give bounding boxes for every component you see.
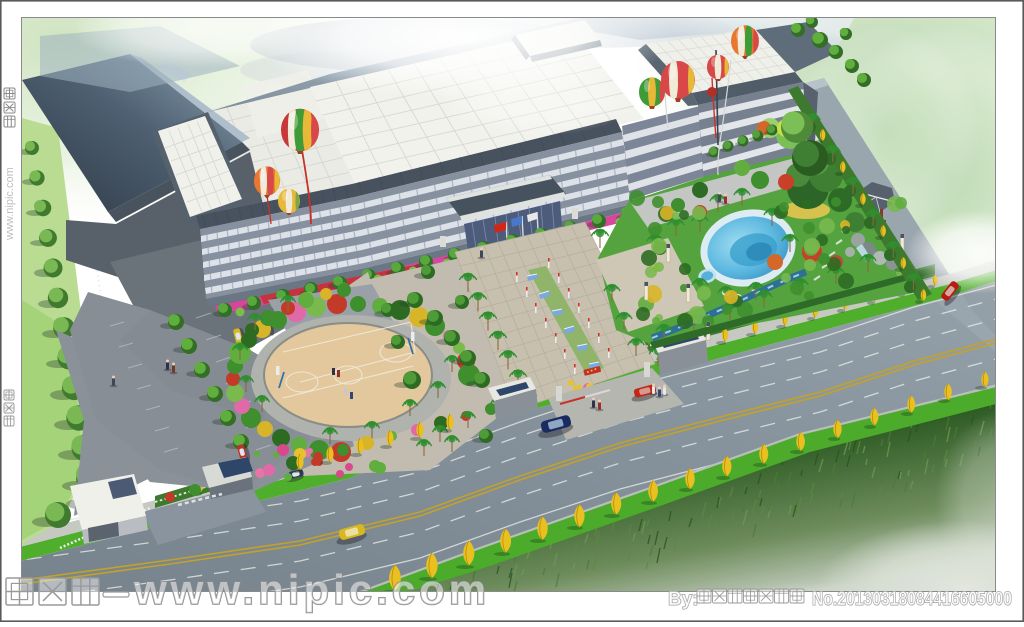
svg-text:www.nipic.com: www.nipic.com: [4, 167, 16, 241]
svg-text:www.nipic.com: www.nipic.com: [133, 566, 490, 613]
svg-text:No.20130318084416605000: No.20130318084416605000: [812, 589, 1012, 610]
svg-text:By:: By:: [668, 589, 699, 610]
